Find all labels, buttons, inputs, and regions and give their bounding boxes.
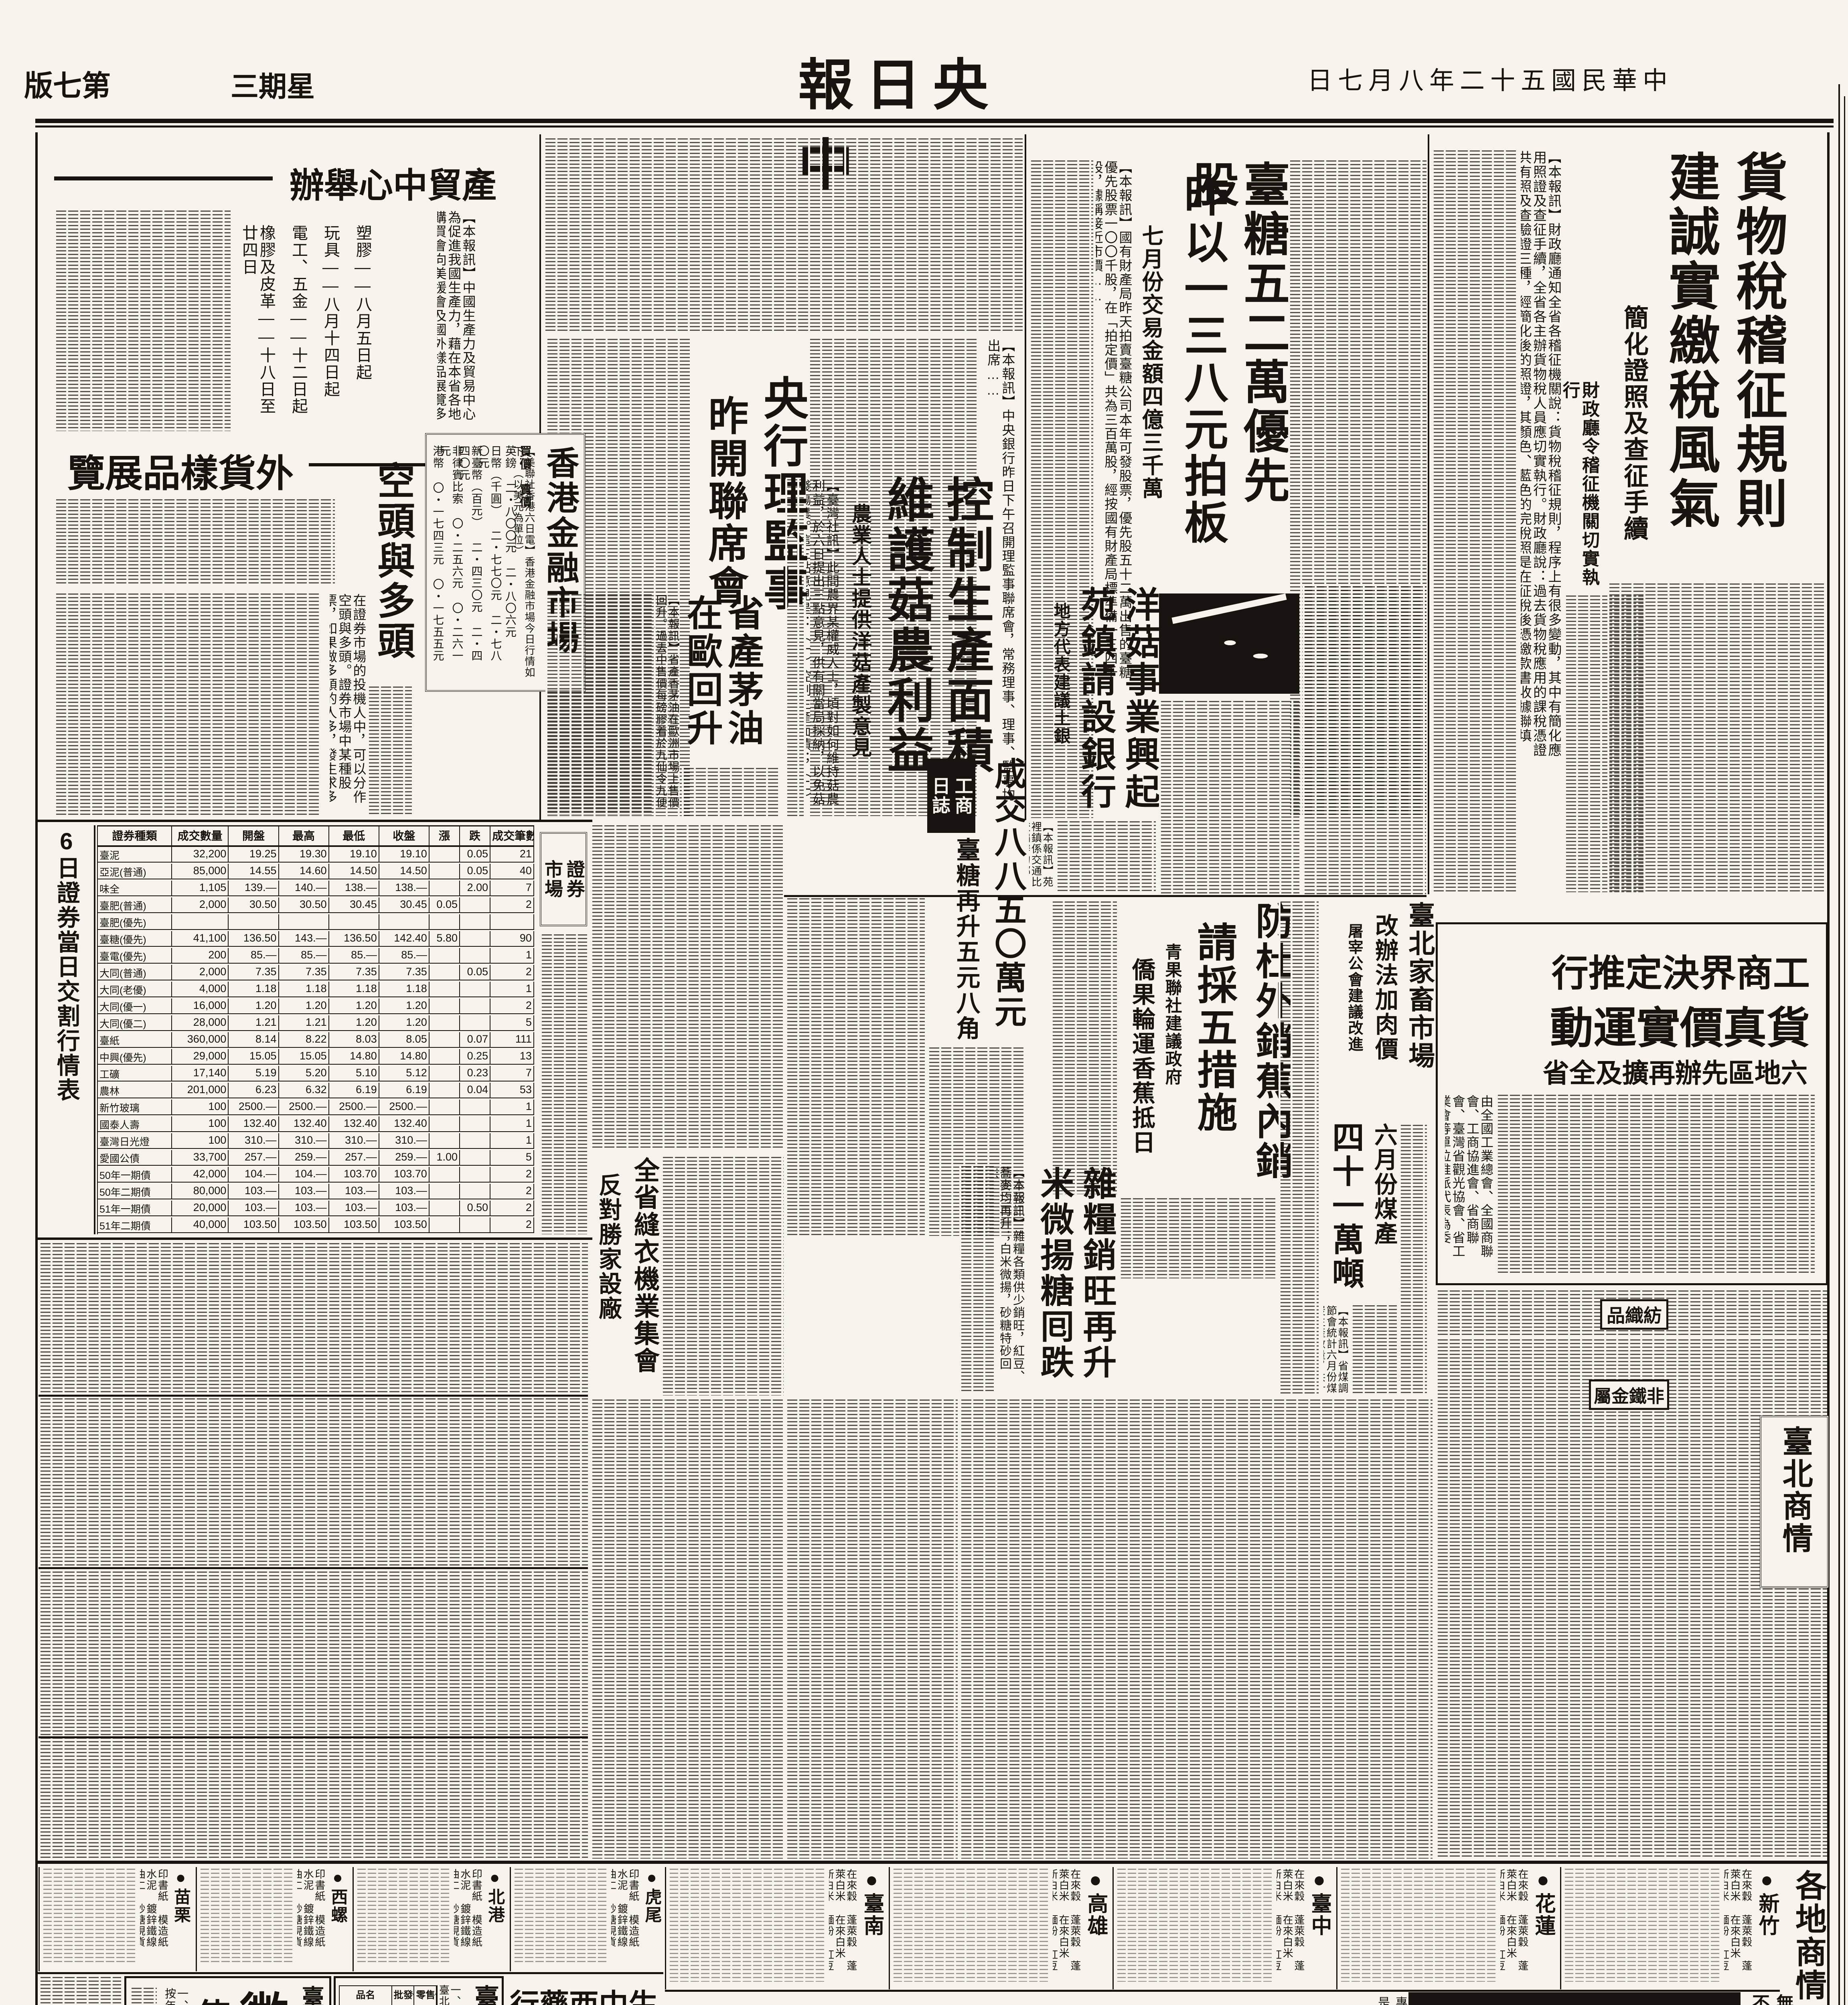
stock-value-cell: 7.35 xyxy=(279,965,329,980)
stock-table-title-cell: 6日證券當日交割行情表 xyxy=(38,825,95,1234)
classified-filler-a xyxy=(590,825,784,1150)
market-prices-filler xyxy=(1115,1869,1273,1982)
stock-value-cell: 1.20 xyxy=(379,998,430,1014)
stock-value-cell: 7.35 xyxy=(329,965,379,980)
expo-headline-2: 覽展品樣貨外 xyxy=(56,443,305,490)
banana-headline-3: 僑果輪運香蕉抵日 xyxy=(1121,958,1154,1194)
stock-value-cell: 0.05 xyxy=(460,847,490,863)
expo-schedule-3: 電工、五金——十二日起 xyxy=(281,225,307,425)
cannery-col-header: 品名 xyxy=(340,1986,392,2005)
stock-value-cell: 1 xyxy=(490,1116,534,1132)
gmw-name: 丸明光 xyxy=(1421,1988,1728,2005)
stock-value-cell: 104.— xyxy=(279,1167,329,1183)
stock-value-cell: 111 xyxy=(490,1032,534,1048)
stock-value-cell xyxy=(430,914,460,930)
stock-value-cell: 19.30 xyxy=(279,847,329,863)
hk-rate-row: 英鎊 二・八〇〇元 二・八〇六元 xyxy=(503,445,517,670)
stock-value-cell: 19.10 xyxy=(379,847,430,863)
stock-value-cell xyxy=(460,914,490,930)
mushbank-subhead: 地方代表建議土銀 xyxy=(1047,602,1070,803)
livestock-headline-2: 改辦法加肉價 xyxy=(1365,913,1397,1118)
stock-value-cell: 100 xyxy=(172,1133,229,1149)
stock-value-cell: 32,200 xyxy=(172,847,229,863)
regional-title: 各地商情 xyxy=(1784,1869,1826,2005)
bears-body: 在證券市場的投機人中，可以分作空頭與多頭。證券市場中某種股票，如果做多頭的人多，… xyxy=(330,593,366,814)
stock-value-cell xyxy=(430,982,460,997)
sugar-auction-headline-2: 臺糖再升五元八角 xyxy=(942,837,979,1046)
stock-value-cell: 2.00 xyxy=(460,881,490,896)
stock-value-cell: 33,700 xyxy=(172,1150,229,1166)
stock-value-cell: 103.50 xyxy=(329,1217,379,1233)
classified-filler-left xyxy=(38,1243,588,1859)
stock-value-cell: 16,000 xyxy=(172,998,229,1014)
stock-value-cell: 5.20 xyxy=(279,1066,329,1081)
stock-value-cell: 100 xyxy=(172,1116,229,1132)
stock-value-cell: 6.19 xyxy=(379,1083,430,1098)
mushbank-filler xyxy=(1056,821,1156,893)
market-prices-filler xyxy=(668,1869,826,1982)
stock-value-cell: 30.50 xyxy=(229,897,279,913)
expo-filler2 xyxy=(54,499,335,585)
market-group: ●高雄在來穀 蓬萊穀 蓬萊白米 在來白米 新白米 麵粉 紅豆 綠豆 烏豆 花生仁… xyxy=(889,1867,1108,1989)
stock-value-cell: 0.50 xyxy=(460,1201,490,1216)
stock-name-cell: 臺灣日光燈 xyxy=(98,1133,172,1149)
stock-value-cell: 103.50 xyxy=(279,1217,329,1233)
stock-value-cell: 2 xyxy=(490,1184,534,1199)
stock-value-cell: 103.70 xyxy=(329,1167,379,1183)
textiles-label: 品織紡 xyxy=(1600,1299,1668,1330)
stock-value-cell: 2 xyxy=(490,1201,534,1216)
market-products: 印書紙 模造紙 水泥 鍍鋅鐵線 油仁 砂糖現貨 xyxy=(297,1869,325,1964)
sewing-filler xyxy=(661,1157,784,1395)
market-prices-filler xyxy=(513,1869,608,1964)
stock-value-cell: 1 xyxy=(490,948,534,964)
stock-value-cell: 132.40 xyxy=(279,1116,329,1132)
stock-name-cell: 農林 xyxy=(98,1083,172,1098)
stock-name-cell: 中興(優先) xyxy=(98,1049,172,1065)
stock-value-cell xyxy=(430,1032,460,1048)
stock-value-cell: 0.05 xyxy=(460,864,490,879)
exchange-logo-line2: 市場 xyxy=(542,860,563,899)
stock-value-cell: 14.80 xyxy=(329,1049,379,1065)
stock-value-cell: 6.19 xyxy=(329,1083,379,1098)
stock-value-cell: 5 xyxy=(490,1015,534,1031)
stock-value-cell: 53 xyxy=(490,1083,534,1098)
grains-headline-2: 米微揚糖囘跌 xyxy=(1033,1166,1072,1399)
stock-value-cell xyxy=(172,914,229,930)
livestock-subhead: 屠宰公會建議改進 xyxy=(1339,923,1362,1108)
stock-value-cell xyxy=(460,1184,490,1199)
stock-value-cell: 5.12 xyxy=(379,1066,430,1081)
edition-label: 版七第 xyxy=(24,62,136,102)
stock-value-cell: 8.05 xyxy=(379,1032,430,1048)
stock-name-cell: 新竹玻璃 xyxy=(98,1100,172,1115)
banana-filler xyxy=(1051,901,1117,1194)
stock-name-cell: 51年二期債 xyxy=(98,1217,172,1233)
stock-value-cell: 103.— xyxy=(329,1184,379,1199)
banana-headline-2: 請採五措施 xyxy=(1186,921,1235,1154)
stock-value-cell: 1.20 xyxy=(229,998,279,1014)
stock-value-cell xyxy=(490,914,534,930)
stock-value-cell: 2500.— xyxy=(229,1100,279,1115)
expo-dash-rule xyxy=(54,176,273,180)
livestock-headline-1: 臺北家畜市場 xyxy=(1399,901,1433,1122)
stock-value-cell: 1.20 xyxy=(379,1015,430,1031)
frame-left-rule xyxy=(35,132,38,2005)
stock-value-cell: 0.05 xyxy=(460,965,490,980)
stock-value-cell: 14.55 xyxy=(229,864,279,879)
stock-value-cell: 85.— xyxy=(279,948,329,964)
market-group: ●苗栗印書紙 模造紙 水泥 鍍鋅鐵線 油仁 砂糖現貨 xyxy=(38,1867,192,1971)
stock-value-cell xyxy=(430,1184,460,1199)
stock-value-cell: 1.20 xyxy=(279,998,329,1014)
stock-value-cell: 85.— xyxy=(379,948,430,964)
section-logo-image xyxy=(1159,593,1299,694)
banana-subhead: 青果聯社建議政府 xyxy=(1157,943,1181,1144)
stock-name-cell: 大同(優二) xyxy=(98,1015,172,1031)
classified-rule-2 xyxy=(38,1567,588,1569)
market-products: 在來穀 蓬萊穀 蓬萊白米 在來白米 新白米 麵粉 紅豆 綠豆 烏豆 花生仁 生油… xyxy=(1724,1869,1752,1982)
stock-value-cell: 4,000 xyxy=(172,982,229,997)
stock-value-cell: 1 xyxy=(490,1133,534,1149)
stock-value-cell: 14.60 xyxy=(279,864,329,879)
stock-value-cell: 2,000 xyxy=(172,965,229,980)
market-group: ●花蓮在來穀 蓬萊穀 蓬萊白米 在來白米 新白米 麵粉 紅豆 綠豆 烏豆 花生仁… xyxy=(1336,1867,1556,1989)
expo-body: 【本報訊】中國生產力及貿易中心為促進我國生產力，藉在本省各地購買會向美援會及國外… xyxy=(437,211,475,429)
nonferrous-label: 屬金鐵非 xyxy=(1589,1379,1669,1410)
stock-name-cell: 臺糖(優先) xyxy=(98,931,172,947)
sugar-auction-headline-1: 成交八八五〇萬元 xyxy=(986,757,1025,1042)
bears-headline: 空頭與多頭 xyxy=(367,461,413,678)
stock-value-cell: 6.23 xyxy=(229,1083,279,1098)
weekday-label: 三期星 xyxy=(231,64,343,100)
center-body-filler xyxy=(785,898,925,1235)
stock-value-cell: 103.— xyxy=(379,1201,430,1216)
mid-rule-1 xyxy=(784,895,1427,897)
stock-value-cell: 103.70 xyxy=(379,1167,430,1183)
citronella-headline-2: 在歐回升 xyxy=(682,594,721,763)
cannery-title: 臺灣省物資局徵求食品罐頭經銷商 xyxy=(463,1985,498,2005)
stock-value-cell: 0.23 xyxy=(460,1066,490,1081)
stock-value-cell: 310.— xyxy=(279,1133,329,1149)
stock-value-cell: 8.14 xyxy=(229,1032,279,1048)
stock-col-header: 成交數量 xyxy=(172,826,229,847)
exchange-logo-line1: 證券 xyxy=(564,860,585,899)
stock-value-cell xyxy=(460,1100,490,1115)
taipei-market-box: 臺北商情 xyxy=(1760,1416,1829,1588)
stock-value-cell: 1.18 xyxy=(279,982,329,997)
stock-value-cell xyxy=(430,948,460,964)
stock-value-cell: 1,105 xyxy=(172,881,229,896)
business-diary-line2: 日誌 xyxy=(930,776,950,816)
grains-body: 【本報訊】雜糧各類供少銷旺，紅豆、蕎麥均再升；白米微揚，砂糖特砂回跌…… xyxy=(996,1166,1024,1393)
stock-value-cell xyxy=(460,1133,490,1149)
lead-body-filler3 xyxy=(1607,583,1825,892)
stock-value-cell: 138.— xyxy=(379,881,430,896)
stock-value-cell: 310.— xyxy=(229,1133,279,1149)
mushroom-body: 【臺灣社訊】此間農界某權威人士，頃對如何維持菇農利益，於六日提出三點意見，供有關… xyxy=(806,479,839,818)
stock-col-header: 收盤 xyxy=(379,826,430,847)
market-products: 在來穀 蓬萊穀 蓬萊白米 在來白米 新白米 麵粉 紅豆 綠豆 烏豆 花生仁 生油… xyxy=(1277,1869,1305,1982)
market-name: ●新竹 xyxy=(1755,1869,1778,1982)
stock-value-cell xyxy=(460,897,490,913)
stock-value-cell xyxy=(460,1167,490,1183)
gmw-copy-2: 是眼睛的救星。 xyxy=(1373,1996,1389,2005)
citronella-headline-1: 省產茅油 xyxy=(723,594,762,763)
sewing-headline-1: 全省縫衣機業集會 xyxy=(622,1157,659,1406)
stock-value-cell xyxy=(430,1083,460,1098)
stock-value-cell xyxy=(430,1015,460,1031)
stock-value-cell: 143.— xyxy=(279,931,329,947)
stock-value-cell: 14.80 xyxy=(379,1049,430,1065)
stock-value-cell: 40,000 xyxy=(172,1217,229,1233)
stock-value-cell xyxy=(430,1116,460,1132)
stock-value-cell: 136.50 xyxy=(229,931,279,947)
stock-value-cell: 5.80 xyxy=(430,931,460,947)
header-rule xyxy=(35,119,1834,128)
bicycle-title-1: 徵求脚踏車 xyxy=(230,1990,286,2005)
table-bottom-rule xyxy=(37,1237,592,1240)
stock-value-cell: 90 xyxy=(490,931,534,947)
stock-name-cell: 大同(優一) xyxy=(98,998,172,1014)
stock-value-cell: 7 xyxy=(490,1066,534,1081)
gmw-tagline-2: 不明能再明 xyxy=(1746,1994,1769,2005)
col-sep-c xyxy=(1428,134,1429,894)
coal-filler xyxy=(1351,1305,1397,1395)
page-edge-line2 xyxy=(1844,96,1845,2005)
stock-value-cell: 2500.— xyxy=(279,1100,329,1115)
hk-price-labels: 買價 賣價 xyxy=(518,445,531,670)
stock-table: 證券種類成交數量開盤最高最低收盤漲跌成交筆數臺泥32,20019.2519.30… xyxy=(97,825,534,1234)
stock-value-cell: 15.05 xyxy=(279,1049,329,1065)
regional-left-rule xyxy=(37,1972,663,1974)
market-products: 在來穀 蓬萊穀 蓬萊白米 在來白米 新白米 麵粉 紅豆 綠豆 烏豆 花生仁 生油… xyxy=(1500,1869,1528,1982)
stock-value-cell: 13 xyxy=(490,1049,534,1065)
stock-col-header: 最高 xyxy=(279,826,329,847)
market-name: ●北港 xyxy=(485,1869,504,1964)
regional-top-rule xyxy=(37,1861,1829,1864)
stock-value-cell: 360,000 xyxy=(172,1032,229,1048)
lead-headline-1: 貨物稅稽征規則 xyxy=(1723,150,1785,575)
stock-value-cell: 201,000 xyxy=(172,1083,229,1098)
stock-value-cell: 2 xyxy=(490,998,534,1014)
hk-rate-row: 新臺幣（百元） 二・四三〇元 二・四四〇元 xyxy=(465,445,482,670)
stock-value-cell: 259.— xyxy=(279,1150,329,1166)
stock-value-cell: 42,000 xyxy=(172,1167,229,1183)
stock-name-cell: 臺紙 xyxy=(98,1032,172,1048)
stock-value-cell xyxy=(460,948,490,964)
stock-value-cell: 2 xyxy=(490,965,534,980)
market-products: 印書紙 模造紙 水泥 鍍鋅鐵線 油仁 砂糖現貨 xyxy=(454,1869,482,1964)
bicycle-filler xyxy=(130,1988,157,2005)
lead-headline-2: 建誠實繳稅風氣 xyxy=(1655,150,1718,575)
stock-value-cell: 40 xyxy=(490,864,534,879)
market-group: ●北港印書紙 模造紙 水泥 鍍鋅鐵線 油仁 砂糖現貨 xyxy=(353,1867,506,1971)
stock-value-cell xyxy=(430,998,460,1014)
stock-name-cell: 愛國公債 xyxy=(98,1150,172,1166)
stock-value-cell: 85,000 xyxy=(172,864,229,879)
lead-subhead-1: 簡化證照及查征手續 xyxy=(1609,305,1647,577)
expo-filler xyxy=(54,211,231,431)
fair-price-box: 行推定決界商工 動運實價真貨 省全及擴再辦先區地六 由全國工業總會、全國商聯會、… xyxy=(1436,922,1828,1285)
citronella-filler xyxy=(545,594,652,815)
stock-name-cell: 臺肥(普通) xyxy=(98,897,172,913)
stock-col-header: 成交筆數 xyxy=(490,826,534,847)
mushbank-body: 【本報訊】苑裡鎮係交通比較偏僻的鄉鎮，但因近兩年來洋菇外銷的突然興起，日形繁榮，… xyxy=(1029,821,1053,893)
market-products: 在來穀 蓬萊穀 蓬萊白米 在來白米 新白米 麵粉 紅豆 綠豆 烏豆 花生仁 生油… xyxy=(1053,1869,1081,1982)
stock-value-cell: 21 xyxy=(490,847,534,863)
fairprice-filler xyxy=(1496,1095,1815,1273)
textiles-label-text: 品織紡 xyxy=(1607,1301,1662,1328)
stock-value-cell: 7 xyxy=(490,881,534,896)
grains-filler xyxy=(959,1166,994,1393)
stock-name-cell: 工礦 xyxy=(98,1066,172,1081)
mushroom-headline-2: 維護菇農利益 xyxy=(875,475,932,824)
stock-value-cell: 7.35 xyxy=(379,965,430,980)
stock-value-cell xyxy=(460,982,490,997)
stock-name-cell: 大同(老優) xyxy=(98,982,172,997)
stock-value-cell xyxy=(460,931,490,947)
stock-value-cell xyxy=(430,881,460,896)
lead-body-filler xyxy=(1432,150,1518,892)
stock-table-title: 6日證券當日交割行情表 xyxy=(53,828,79,1229)
stock-value-cell: 15.05 xyxy=(229,1049,279,1065)
hk-rate-row: 日幣（千圓） 二・七七〇元 二・七八〇元 xyxy=(484,445,502,670)
stock-value-cell xyxy=(430,1167,460,1183)
stock-value-cell: 310.— xyxy=(379,1133,430,1149)
stock-value-cell: 8.22 xyxy=(279,1032,329,1048)
stock-value-cell: 7.35 xyxy=(229,965,279,980)
stock-value-cell xyxy=(460,1150,490,1166)
cannery-ad-box: 臺灣省物資局徵求食品罐頭經銷商 一、本局高雄食品廠出品之各種魚肉罐頭，價廉物美，… xyxy=(334,1976,504,2005)
livestock-filler xyxy=(1399,1125,1427,1395)
mushbank-headline-1: 洋菇事業興起 xyxy=(1118,586,1158,819)
stock-value-cell xyxy=(379,914,430,930)
fairprice-body: 由全國工業總會、全國商聯會、工商協進會、省商聯會、臺灣省觀光協會、省工業會等單位… xyxy=(1445,1095,1493,1271)
stock-col-header: 跌 xyxy=(460,826,490,847)
stock-value-cell: 30.50 xyxy=(279,897,329,913)
stock-col-header: 證券種類 xyxy=(98,826,172,847)
hk-rate-row: 港幣 〇・一七四三元 〇・一七五五元 xyxy=(431,445,444,670)
cb-top-filler xyxy=(543,138,1023,331)
stock-value-cell: 136.50 xyxy=(329,931,379,947)
regional-markets-right: ●新竹在來穀 蓬萊穀 蓬萊白米 在來白米 新白米 麵粉 紅豆 綠豆 烏豆 花生仁… xyxy=(665,1867,1780,1989)
market-prices-filler xyxy=(892,1869,1050,1982)
stock-value-cell: 310.— xyxy=(329,1133,379,1149)
stock-name-cell: 味全 xyxy=(98,881,172,896)
fairprice-headline-1: 行推定決界商工 xyxy=(1529,944,1810,988)
market-name: ●西螺 xyxy=(328,1869,347,1964)
stock-name-cell: 亞泥(普通) xyxy=(98,864,172,879)
business-diary-logo: 工商 日誌 xyxy=(927,759,975,833)
citronella-filler2 xyxy=(682,768,778,816)
stock-value-cell xyxy=(430,1066,460,1081)
stock-value-cell xyxy=(279,914,329,930)
stock-value-cell: 20,000 xyxy=(172,1201,229,1216)
stock-value-cell: 132.40 xyxy=(379,1116,430,1132)
stock-name-cell: 臺泥 xyxy=(98,847,172,863)
stock-value-cell xyxy=(430,864,460,879)
stock-value-cell: 104.— xyxy=(229,1167,279,1183)
market-prices-filler xyxy=(199,1869,294,1964)
stock-value-cell: 103.— xyxy=(229,1184,279,1199)
logo-slash-decor xyxy=(1172,593,1287,624)
stock-value-cell: 0.04 xyxy=(460,1083,490,1098)
stock-value-cell: 0.07 xyxy=(460,1032,490,1048)
pharmacy-store: 行藥西中生民 xyxy=(506,1981,662,2005)
bicycle-org: 臺灣省政府財政廳 xyxy=(292,1985,324,2005)
coal-headline-2: 四十一萬噸 xyxy=(1323,1121,1363,1301)
stock-name-cell: 50年二期債 xyxy=(98,1184,172,1199)
market-name: ●虎尾 xyxy=(642,1869,661,1964)
stock-value-cell xyxy=(460,1217,490,1233)
grains-headline-1: 雜糧銷旺再升 xyxy=(1076,1166,1115,1399)
hk-rate-rows: 買價 賣價英鎊 二・八〇〇元 二・八〇六元日幣（千圓） 二・七七〇元 二・七八〇… xyxy=(431,445,531,680)
stock-value-cell xyxy=(329,914,379,930)
stock-value-cell: 14.50 xyxy=(379,864,430,879)
stock-value-cell: 103.— xyxy=(229,1201,279,1216)
issue-date: 日七月八年二十五國民華中 xyxy=(1307,60,1801,92)
stock-value-cell: 103.50 xyxy=(379,1217,430,1233)
stock-value-cell: 142.40 xyxy=(379,931,430,947)
stock-value-cell: 138.— xyxy=(329,881,379,896)
sugar-subhead: 七月份交易金額四億三千萬 xyxy=(1133,225,1162,537)
stock-value-cell: 103.— xyxy=(379,1184,430,1199)
stock-name-cell: 50年一期債 xyxy=(98,1167,172,1183)
regional-markets-left: ●虎尾印書紙 模造紙 水泥 鍍鋅鐵線 油仁 砂糖現貨●北港印書紙 模造紙 水泥 … xyxy=(38,1867,663,1971)
cannery-intro: 一、本局高雄食品廠出品之各種魚肉罐頭，價廉物美，茲為應各界需要。二、凡願意經銷上… xyxy=(436,1985,461,2005)
lead-subhead-2: 財政廳令稽征機關切實執行 xyxy=(1566,381,1599,589)
coal-headline-1: 六月份煤產 xyxy=(1364,1123,1396,1295)
stock-value-cell: 259.— xyxy=(379,1150,430,1166)
stock-value-cell xyxy=(430,1133,460,1149)
stock-name-cell: 國泰人壽 xyxy=(98,1116,172,1132)
stock-name-cell: 臺電(優先) xyxy=(98,948,172,964)
stock-value-cell: 132.40 xyxy=(229,1116,279,1132)
fairprice-subhead: 省全及擴再辦先區地六 xyxy=(1455,1052,1807,1086)
page-edge-line xyxy=(1838,84,1840,2005)
logo-script-decor xyxy=(1207,630,1283,674)
stock-value-cell: 5.19 xyxy=(229,1066,279,1081)
expo-schedule-2: 玩具——八月十四日起 xyxy=(313,225,339,425)
stock-value-cell xyxy=(430,1100,460,1115)
taipei-market-title: 臺北商情 xyxy=(1777,1426,1811,1578)
market-prices-filler xyxy=(1563,1869,1721,1982)
bicycle-ad-box: 臺灣省政府財政廳 徵求脚踏車 使用牌照圖樣 一、規格：形式大小不拘，惟應適合裝掛… xyxy=(124,1976,331,2005)
stock-value-cell: 140.— xyxy=(279,881,329,896)
stock-value-cell: 30.45 xyxy=(379,897,430,913)
notice-margin-filler xyxy=(38,1977,121,2005)
citronella-body: 【本報訊】省產香茅油在歐洲市場上售價回升。過去中售價每磅膠着於九仙令九便士至九仙… xyxy=(654,594,679,815)
stock-value-cell: 1.18 xyxy=(229,982,279,997)
business-diary-line1: 工商 xyxy=(952,776,973,816)
stock-value-cell: 5 xyxy=(490,1150,534,1166)
stock-value-cell xyxy=(430,1201,460,1216)
market-prices-filler xyxy=(355,1869,451,1964)
stock-value-cell: 1.18 xyxy=(329,982,379,997)
stock-value-cell: 2,000 xyxy=(172,897,229,913)
stock-value-cell: 103.— xyxy=(279,1184,329,1199)
stock-value-cell: 28,000 xyxy=(172,1015,229,1031)
stock-value-cell: 103.50 xyxy=(229,1217,279,1233)
bears-filler2 xyxy=(367,687,412,815)
sugar-headline-1: 臺糖五二萬優先股 xyxy=(1229,160,1287,553)
market-group: ●臺中在來穀 蓬萊穀 蓬萊白米 在來白米 新白米 麵粉 紅豆 綠豆 烏豆 花生仁… xyxy=(1112,1867,1332,1989)
stock-value-cell: 2500.— xyxy=(329,1100,379,1115)
stock-name-cell: 臺肥(優先) xyxy=(98,914,172,930)
expo-headline-1: 辦舉心中貿產 xyxy=(281,157,505,199)
mushroom-filler xyxy=(785,479,804,818)
